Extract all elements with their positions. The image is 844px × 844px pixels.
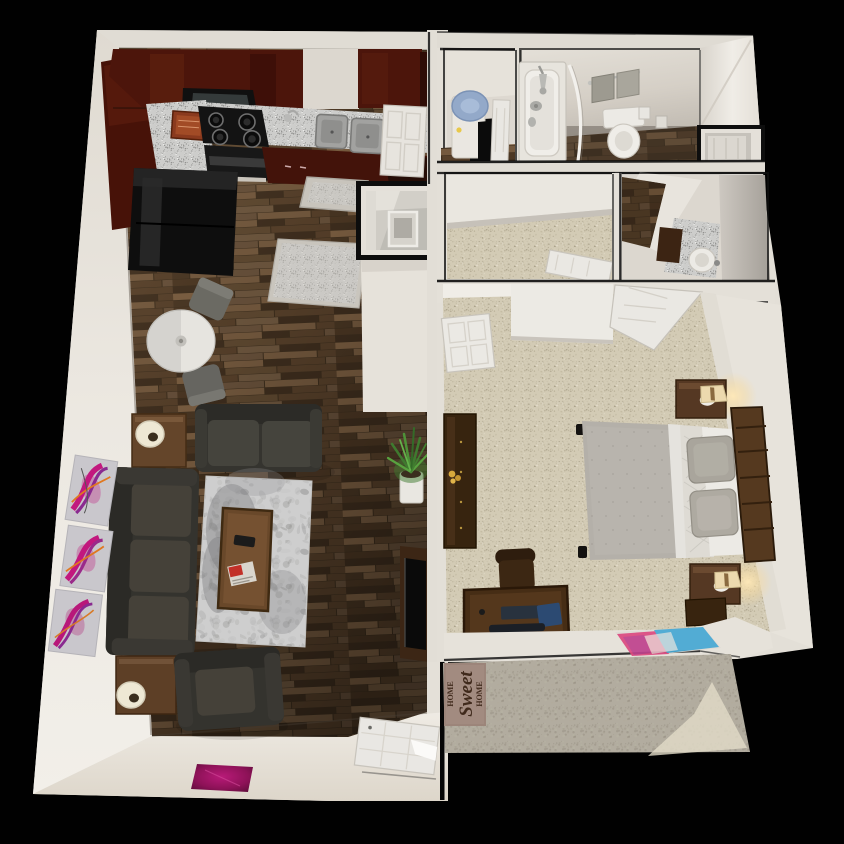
- svg-text:HOME: HOME: [446, 681, 455, 706]
- svg-text:Sweet: Sweet: [456, 671, 477, 717]
- svg-text:HOME: HOME: [475, 681, 484, 706]
